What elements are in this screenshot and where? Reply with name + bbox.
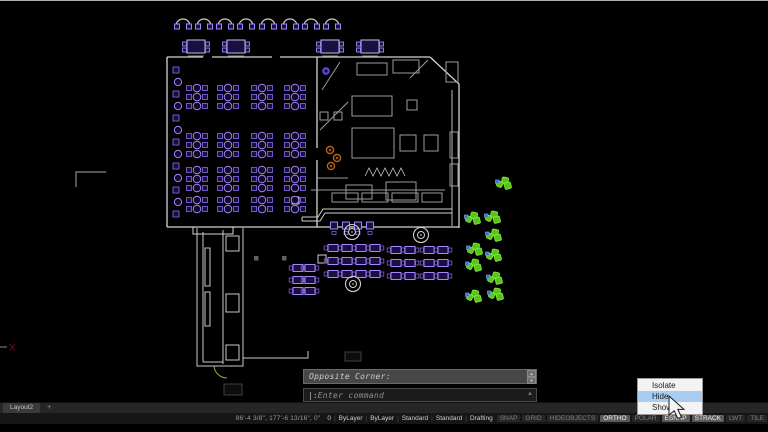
status-field-1[interactable]: ByLayer [336, 415, 366, 422]
command-history-text: Opposite Corner: [309, 372, 391, 381]
top-chair-row [175, 19, 341, 29]
lower-dining-tables [289, 245, 452, 295]
status-field-4[interactable]: Standard [433, 415, 465, 422]
toggle-polar[interactable]: POLAR [632, 415, 660, 422]
command-scrollbar[interactable]: ▲ ▼ [527, 370, 536, 383]
viewport-corner-marker [76, 172, 106, 187]
toggle-hideobjects[interactable]: HIDEOBJECTS [547, 415, 599, 422]
status-field-5[interactable]: Drafting [467, 415, 496, 422]
scroll-down-icon[interactable]: ▼ [527, 377, 536, 384]
hatch-pattern [365, 168, 405, 176]
status-field-3[interactable]: Standard [399, 415, 431, 422]
status-fields: 0|ByLayer|ByLayer|Standard|Standard|Draf… [324, 415, 495, 422]
cursor-arrow-icon [668, 395, 688, 423]
kitchen-equipment [317, 60, 458, 200]
scroll-up-icon[interactable]: ▲ [527, 370, 536, 377]
toggle-snap[interactable]: SNAP [497, 415, 521, 422]
cad-application-window: X Opposite Corner: ▲ ▼ |: Enter command … [0, 0, 768, 432]
toggle-tile[interactable]: TILE [747, 415, 767, 422]
toggle-strack[interactable]: STRACK [692, 415, 724, 422]
add-layout-button[interactable]: + [44, 403, 54, 413]
floor-plan-drawing[interactable]: X [0, 0, 768, 403]
status-field-2[interactable]: ByLayer [367, 415, 397, 422]
menu-item-isolate[interactable]: Isolate [638, 380, 702, 391]
bottom-strip [0, 424, 768, 432]
top-table-row [183, 40, 384, 56]
toggle-grid[interactable]: GRID [522, 415, 544, 422]
plants [465, 177, 512, 303]
command-window: Opposite Corner: ▲ ▼ |: Enter command ▲ [303, 369, 537, 402]
command-prompt-text: Enter command [318, 391, 385, 400]
expand-history-icon[interactable]: ▲ [527, 391, 533, 397]
dining-table-clusters [187, 84, 306, 213]
coordinates-display[interactable]: 86'-4 3/8", 177'-6 13/16", 0" [236, 415, 321, 422]
svg-text:X: X [9, 343, 16, 354]
wall-booths [173, 67, 182, 217]
walls [167, 57, 459, 234]
command-input[interactable]: |: Enter command ▲ [303, 388, 537, 402]
text-cursor: |: [308, 391, 318, 400]
toggle-ortho[interactable]: ORTHO [600, 415, 629, 422]
toggle-lwt[interactable]: LWT [726, 415, 745, 422]
status-toggles: SNAPGRIDHIDEOBJECTSORTHOPOLARESNAPSTRACK… [496, 414, 768, 423]
status-field-0[interactable]: 0 [324, 415, 334, 422]
command-history[interactable]: Opposite Corner: ▲ ▼ [303, 369, 537, 384]
ucs-marker: X [0, 343, 16, 354]
tab-layout2[interactable]: Layout2 [3, 403, 40, 413]
